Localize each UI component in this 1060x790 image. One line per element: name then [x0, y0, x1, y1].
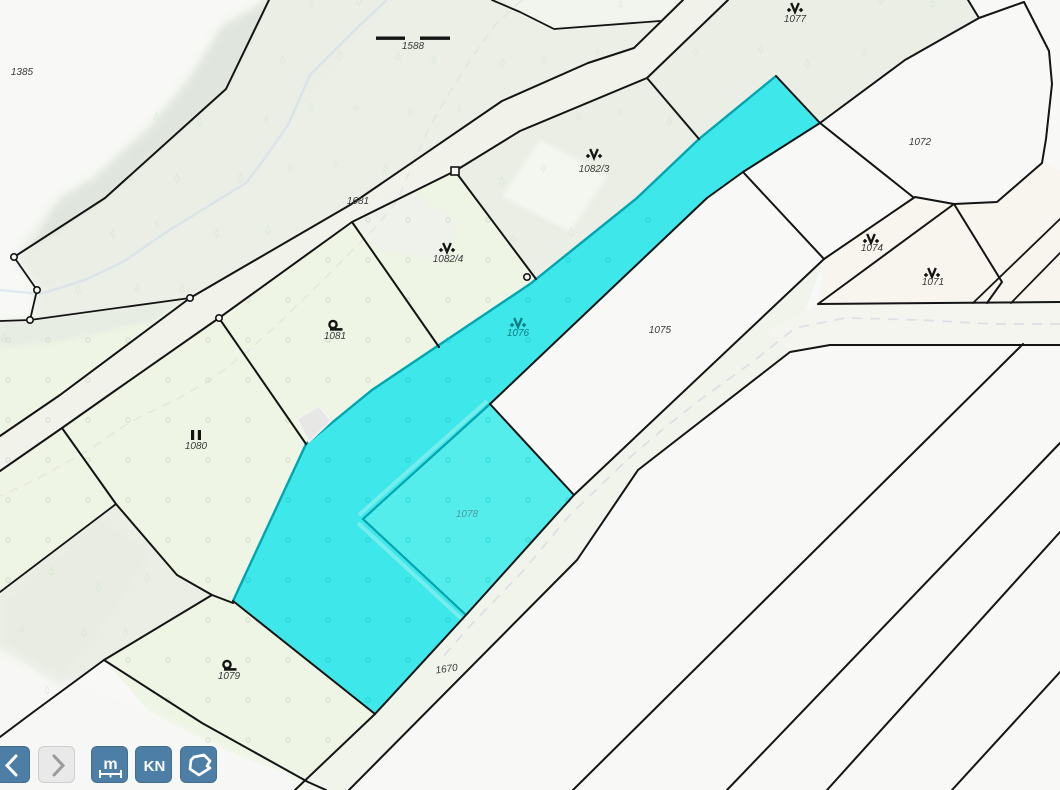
svg-text:1072: 1072: [909, 137, 932, 148]
svg-text:1588: 1588: [402, 41, 425, 52]
svg-text:1082/3: 1082/3: [579, 164, 610, 175]
svg-text:1080: 1080: [185, 441, 208, 452]
svg-text:1077: 1077: [784, 14, 807, 25]
svg-text:1081: 1081: [324, 331, 346, 342]
svg-text:1079: 1079: [218, 671, 241, 682]
svg-text:1681: 1681: [347, 196, 369, 207]
svg-text:1385: 1385: [11, 67, 34, 78]
svg-text:1071: 1071: [922, 277, 944, 288]
svg-text:KN: KN: [144, 758, 166, 775]
svg-text:1074: 1074: [861, 243, 884, 254]
svg-text:1082/4: 1082/4: [433, 254, 464, 265]
svg-text:m: m: [103, 756, 117, 773]
svg-text:1078: 1078: [456, 509, 479, 520]
svg-text:1076: 1076: [507, 328, 530, 339]
svg-text:1075: 1075: [649, 325, 672, 336]
